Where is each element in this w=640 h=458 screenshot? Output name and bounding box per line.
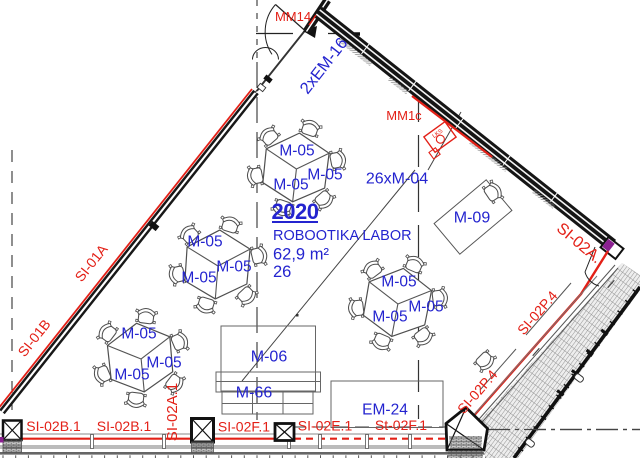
svg-text:M-05: M-05 <box>146 355 181 372</box>
svg-text:M-05: M-05 <box>381 274 416 291</box>
svg-text:EM-24: EM-24 <box>362 402 408 419</box>
svg-text:M-09: M-09 <box>454 210 491 227</box>
svg-text:ROBOOTIKA LABOR: ROBOOTIKA LABOR <box>273 228 412 244</box>
svg-text:M-05: M-05 <box>279 143 314 160</box>
svg-text:SI-02F.1: SI-02F.1 <box>218 419 270 435</box>
svg-text:MM14: MM14 <box>275 9 311 24</box>
svg-text:M-06: M-06 <box>251 349 288 366</box>
svg-text:2020: 2020 <box>272 199 319 224</box>
svg-text:M-05: M-05 <box>273 177 308 194</box>
svg-text:SI-02B.1: SI-02B.1 <box>97 418 152 434</box>
svg-text:SI-02E.1: SI-02E.1 <box>298 418 353 434</box>
svg-text:M-05: M-05 <box>181 270 216 287</box>
svg-text:SI-02A.1: SI-02A.1 <box>164 383 181 441</box>
svg-text:M-05: M-05 <box>121 326 156 343</box>
svg-text:M-05: M-05 <box>216 259 251 276</box>
svg-text:M-05: M-05 <box>114 367 149 384</box>
svg-text:M-05: M-05 <box>372 309 407 326</box>
svg-text:62,9 m²: 62,9 m² <box>273 246 329 264</box>
svg-text:M-05: M-05 <box>408 299 443 316</box>
svg-text:M-05: M-05 <box>307 167 342 184</box>
svg-text:St-02F.1: St-02F.1 <box>375 417 427 433</box>
svg-text:M-66: M-66 <box>236 385 273 402</box>
svg-text:M-05: M-05 <box>187 234 222 251</box>
svg-text:26: 26 <box>273 263 291 281</box>
svg-text:26xM-04: 26xM-04 <box>366 171 428 188</box>
svg-text:SI-02B.1: SI-02B.1 <box>26 418 81 434</box>
svg-text:MM1c: MM1c <box>386 108 422 123</box>
